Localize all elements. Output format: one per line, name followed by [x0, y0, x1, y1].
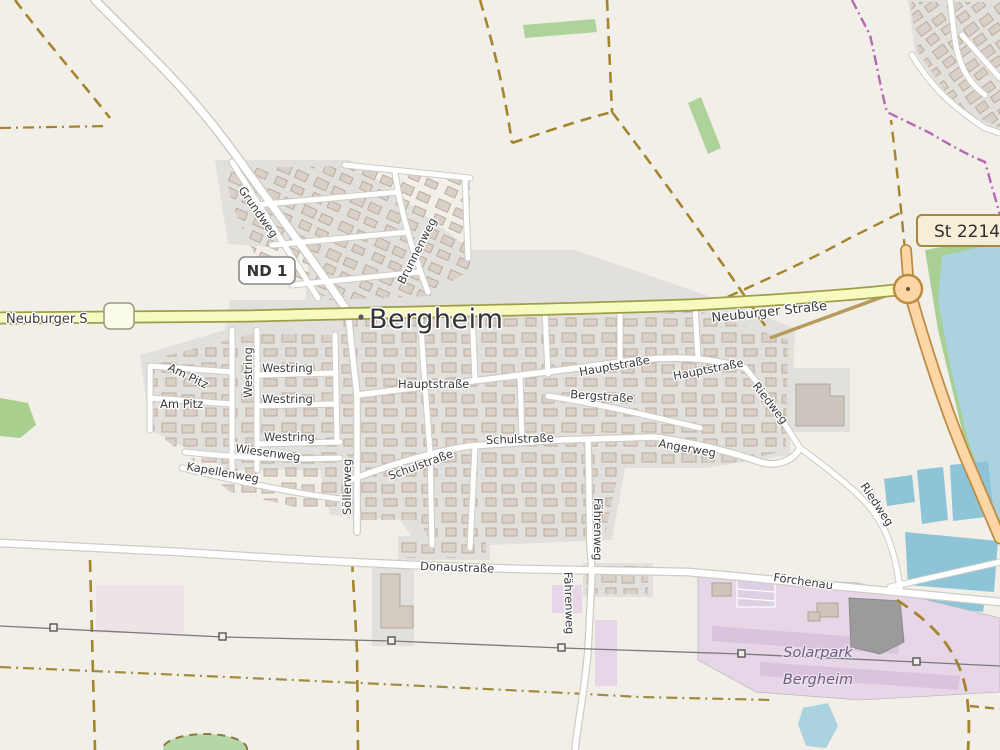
route-badge-nd1-label: ND 1 — [247, 262, 288, 280]
area-label-solarpark-1: Solarpark — [783, 645, 853, 661]
route-badge-empty — [104, 303, 134, 329]
route-badge-st2214-label: St 2214 — [934, 222, 1000, 242]
street-label-am-pitz-2: Am Pitz — [160, 397, 203, 411]
substation-building — [849, 598, 904, 654]
street-label-faehrenweg-1: Fährenweg — [591, 498, 605, 561]
place-label-bergheim: Bergheim — [369, 304, 503, 335]
street-label-westring-v: Westring — [241, 347, 255, 398]
street-label-westring-3: Westring — [264, 430, 315, 444]
street-label-soellerweg: Söllerweg — [340, 459, 354, 515]
area-label-solarpark-2: Bergheim — [783, 672, 853, 688]
street-label-hauptstrasse-w: Hauptstraße — [398, 377, 469, 391]
map-viewport[interactable]: Bergheim Neuburger S Neuburger Straße Gr… — [0, 0, 1000, 750]
osm-map[interactable]: Bergheim Neuburger S Neuburger Straße Gr… — [0, 0, 1000, 750]
street-label-schulstrasse-m: Schulstraße — [486, 431, 554, 447]
street-label-faehrenweg-2: Fährenweg — [561, 572, 577, 635]
street-label-donaustrasse: Donaustraße — [420, 559, 495, 576]
street-label-westring-2: Westring — [262, 392, 313, 406]
street-label-westring-1: Westring — [262, 361, 313, 375]
street-label-neuburger-short: Neuburger S — [6, 312, 88, 327]
place-dot — [358, 314, 363, 319]
